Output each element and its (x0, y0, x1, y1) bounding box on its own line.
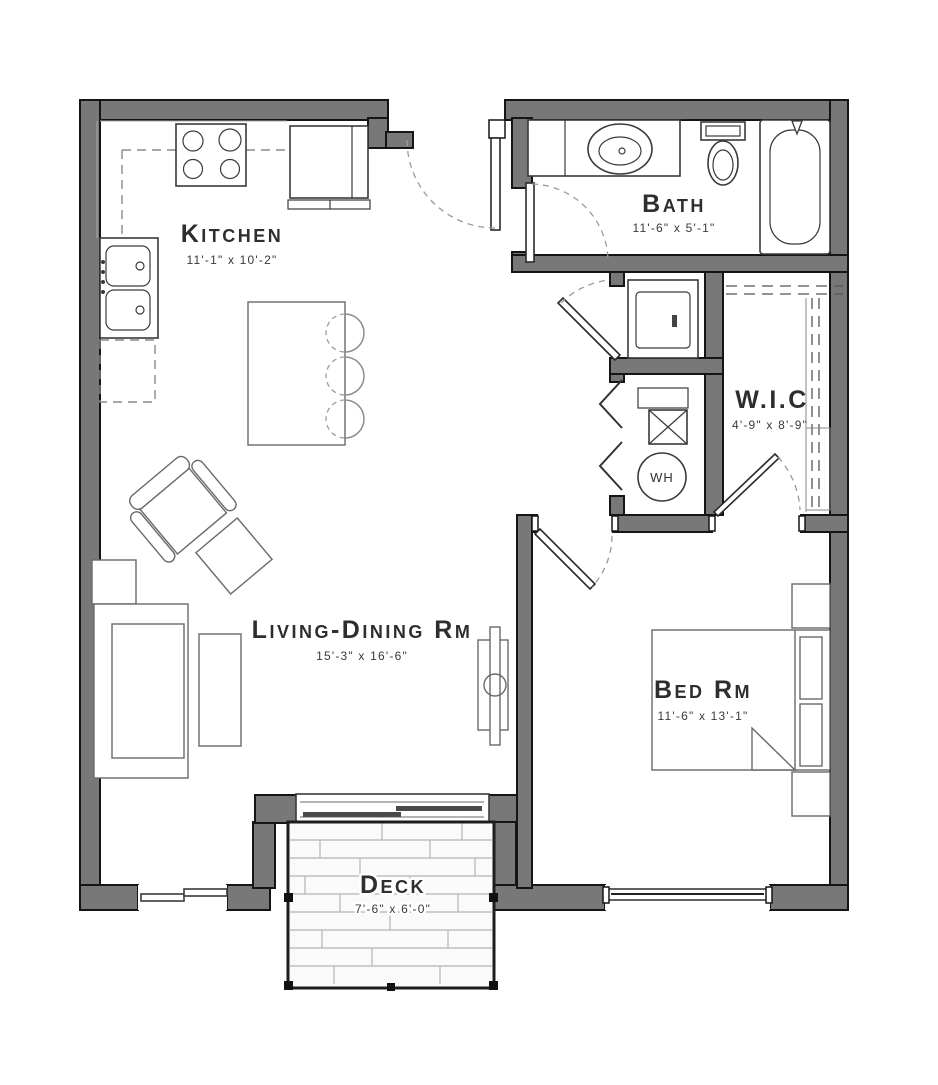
kitchen-sink (100, 238, 158, 338)
water-heater-label: WH (650, 470, 674, 485)
wall-bottom-a (80, 885, 138, 910)
bath-vanity (528, 120, 680, 176)
dryer-box (649, 410, 687, 444)
pillow-1 (800, 637, 822, 699)
bathtub (760, 120, 830, 254)
laundry-door (558, 280, 620, 360)
toilet (701, 122, 745, 185)
wic-label: W.I.C (735, 386, 809, 414)
wall-bedroom-left (517, 515, 532, 888)
wall-slider-right (487, 795, 520, 823)
wall-bath-bottom (512, 255, 848, 272)
coffee-table (199, 634, 241, 746)
living-dining-label: Living-Dining Rm (252, 616, 473, 644)
wall-slider-left (255, 795, 298, 823)
washer-handle (672, 315, 677, 327)
wall-bedroom-top-b (613, 515, 712, 532)
wall-top-right (505, 100, 848, 120)
nightstand-top (792, 584, 830, 628)
wic-shelf-unit (806, 428, 830, 510)
wall-right (830, 100, 848, 910)
wall-bifold-stub-bottom (610, 496, 624, 515)
bath-door (526, 183, 608, 262)
bath-label: Bath (642, 190, 706, 218)
wall-deck-jog-left (253, 822, 275, 888)
wic-dims: 4'-9" x 8'-9" (732, 418, 808, 432)
pillow-2 (800, 704, 822, 766)
deck-post-3 (284, 981, 293, 990)
wall-bottom-d (770, 885, 848, 910)
wall-entry-notch-h (386, 132, 413, 148)
tv-console (478, 627, 508, 745)
entry-door (407, 120, 505, 230)
deck-post-2 (489, 893, 498, 902)
deck-label: Deck (360, 871, 426, 899)
washer (628, 280, 698, 358)
bath-dims: 11'-6" x 5'-1" (632, 221, 715, 235)
refrigerator (288, 126, 370, 209)
bedroom-window (603, 885, 772, 910)
wall-top-left (80, 100, 388, 120)
living-furniture (92, 447, 508, 778)
kitchen-dims: 11'-1" x 10'-2" (187, 253, 278, 267)
bifold-door-upper (600, 380, 622, 428)
wall-closet-bottom (610, 358, 723, 374)
dishwasher (100, 340, 155, 402)
bedroom-door (532, 516, 618, 589)
sofa (94, 604, 188, 778)
wall-closet-stub-top (610, 272, 624, 286)
living-dining-dims: 15'-3" x 16'-6" (316, 649, 408, 663)
nightstand-bottom (792, 772, 830, 816)
floor-plan: WH (0, 0, 938, 1080)
bifold-door-lower (600, 442, 622, 490)
water-heater: WH (638, 453, 686, 501)
sliding-patio-door (296, 794, 489, 822)
stove (176, 124, 246, 186)
wall-bottom-c (494, 885, 605, 910)
kitchen-fixtures (97, 121, 370, 445)
kitchen-label: Kitchen (181, 220, 284, 248)
deck-dims: 7'-6" x 6'-0" (355, 902, 431, 916)
bedroom-dims: 11'-6" x 13'-1" (658, 709, 749, 723)
end-table (92, 560, 136, 604)
wall-bedroom-top-c (801, 515, 848, 532)
wall-deck-jog-right (494, 822, 516, 888)
deck-post-5 (387, 983, 395, 991)
doors (407, 120, 805, 589)
deck-post-4 (489, 981, 498, 990)
bedroom-label: Bed Rm (654, 676, 752, 704)
utility-shelf (638, 388, 688, 408)
utility-closet: WH (600, 280, 698, 501)
kitchen-island (248, 302, 364, 445)
wall-wic-left (705, 272, 723, 515)
deck-post-1 (284, 893, 293, 902)
living-window (138, 885, 227, 910)
floor-plan-svg: WH (0, 0, 938, 1080)
